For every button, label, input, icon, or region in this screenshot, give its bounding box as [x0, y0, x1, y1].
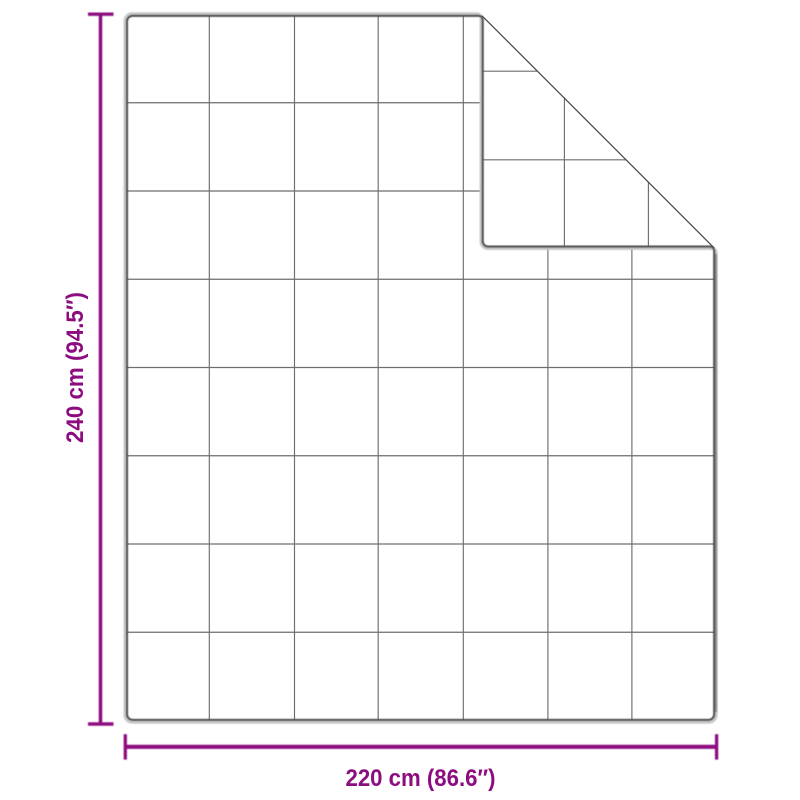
svg-text:240 cm (94.5″): 240 cm (94.5″) [62, 292, 89, 443]
svg-text:220 cm (86.6″): 220 cm (86.6″) [346, 765, 496, 792]
